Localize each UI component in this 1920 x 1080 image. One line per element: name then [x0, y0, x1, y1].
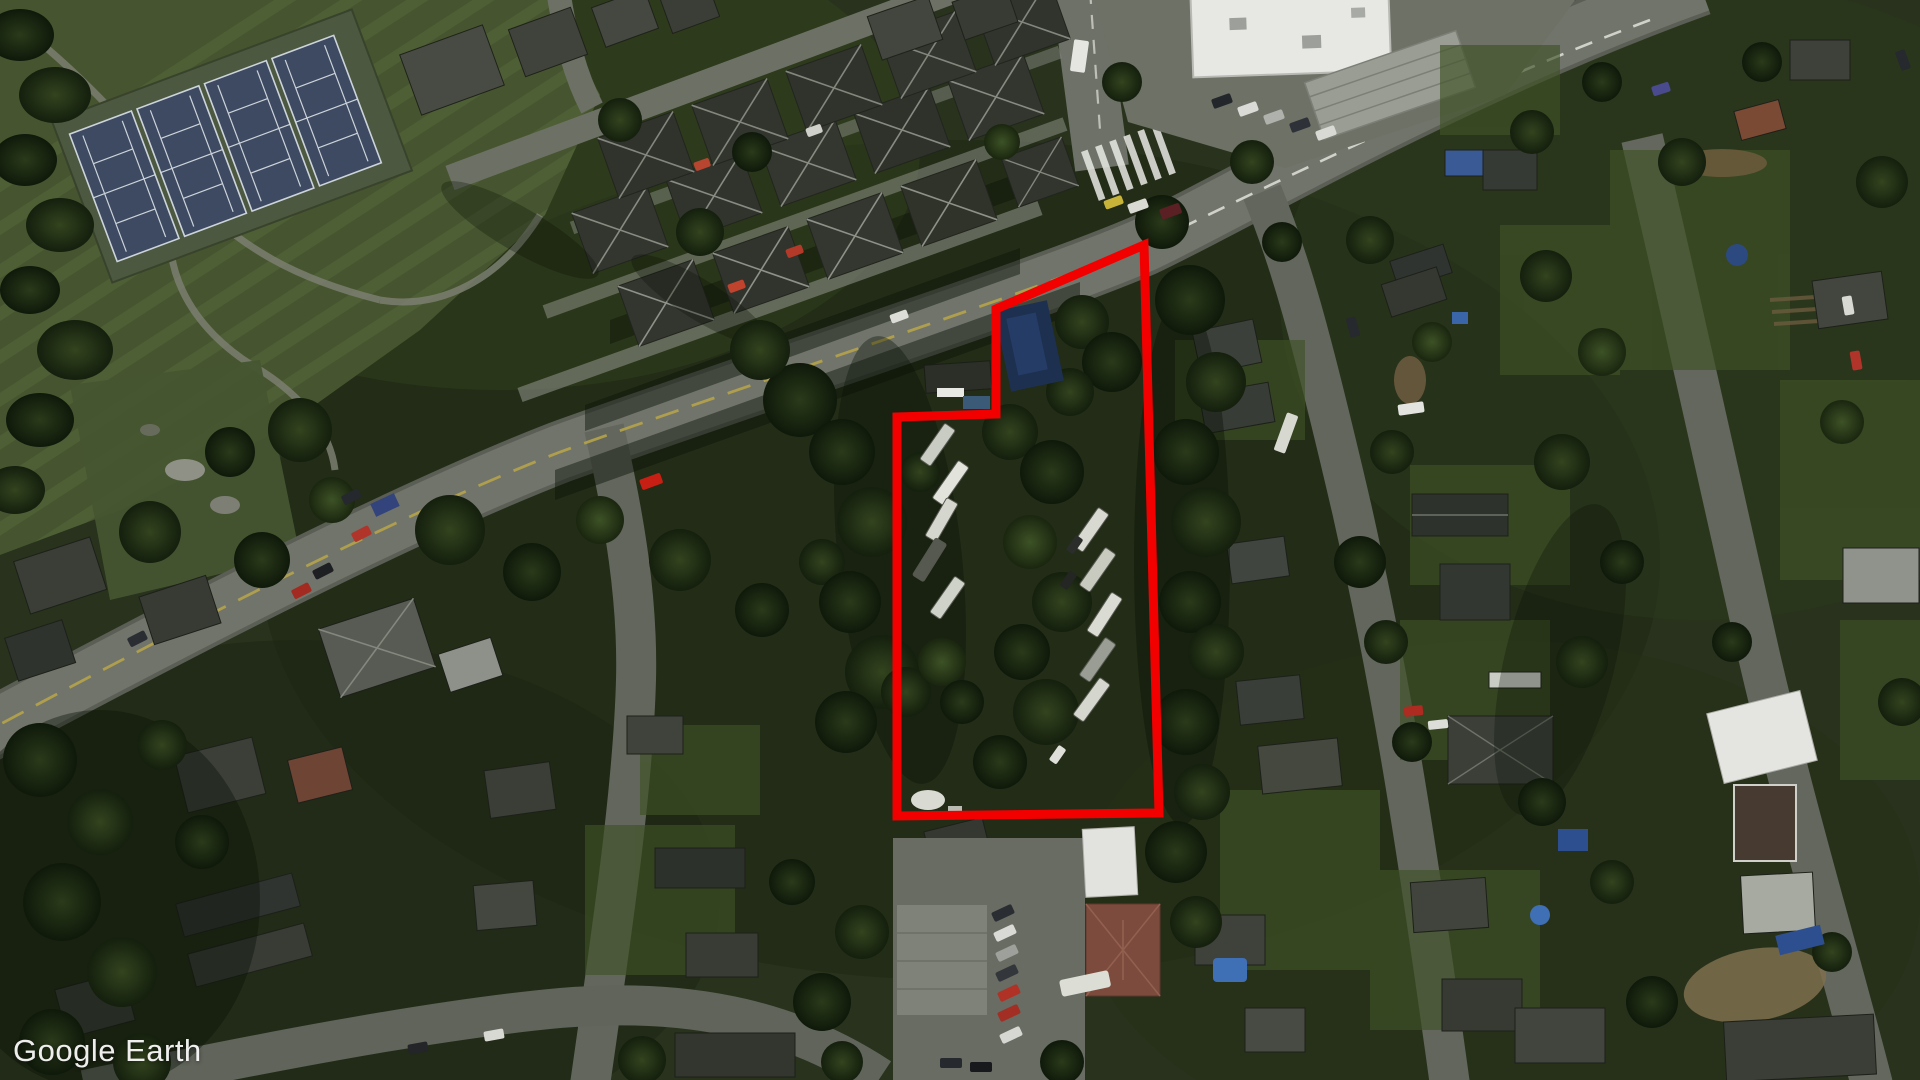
cross-road-top — [1078, 0, 1102, 168]
trampoline — [1726, 244, 1748, 266]
kiddie-pool — [1530, 905, 1550, 925]
white-building-south — [1082, 827, 1137, 898]
google-earth-viewport: Google Earth — [0, 0, 1920, 1080]
blue-tarp-3 — [1452, 312, 1468, 324]
blue-tarp-1 — [1558, 829, 1588, 851]
satellite-imagery-canvas[interactable] — [0, 0, 1920, 1080]
google-earth-watermark: Google Earth — [13, 1033, 202, 1069]
pool — [1213, 958, 1247, 982]
